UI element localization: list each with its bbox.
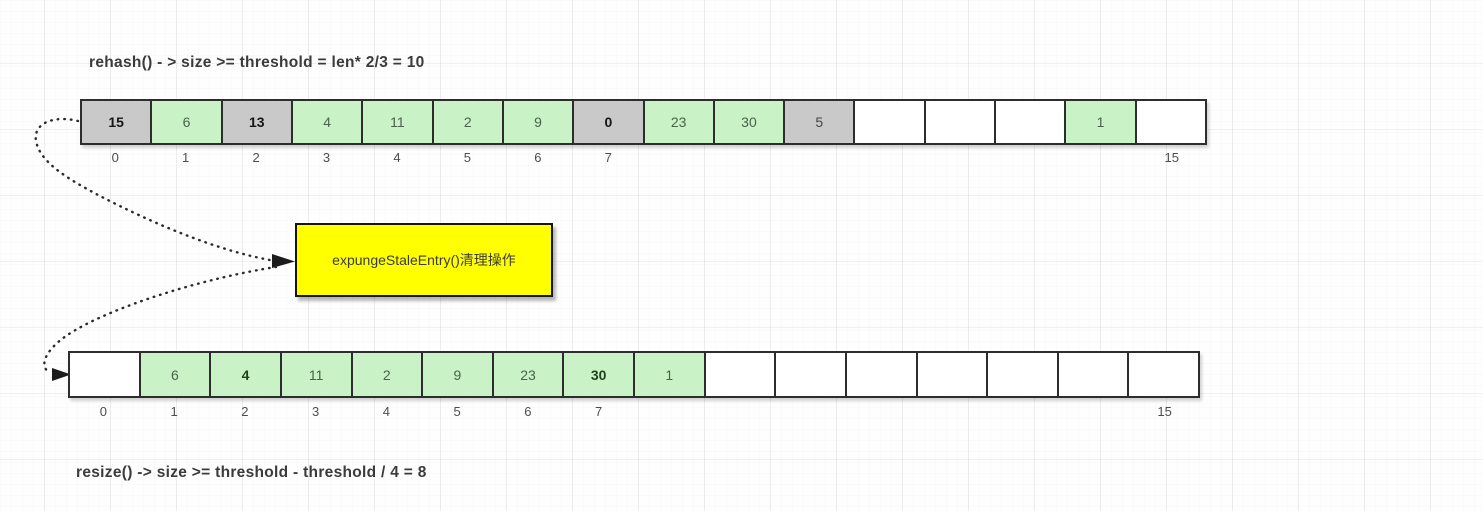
index-label: 4 xyxy=(362,150,432,166)
index-label xyxy=(1059,404,1130,420)
array-cell-empty xyxy=(706,353,777,396)
array-cell-entry: 2 xyxy=(434,101,504,143)
index-label xyxy=(988,404,1059,420)
index-label: 5 xyxy=(432,150,502,166)
index-label: 1 xyxy=(139,404,210,420)
hash-table-before-rehash: 15613411290233051 xyxy=(80,99,1207,145)
index-label xyxy=(705,404,776,420)
array-cell-empty xyxy=(996,101,1066,143)
array-cell-empty xyxy=(1059,353,1130,396)
array-cell-empty xyxy=(926,101,996,143)
arrowhead-into-callout-icon xyxy=(272,254,295,268)
index-label: 15 xyxy=(1129,404,1200,420)
index-label: 2 xyxy=(210,404,281,420)
expunge-callout-box: expungeStaleEntry()清理操作 xyxy=(295,223,553,297)
index-label xyxy=(784,150,854,166)
index-label: 6 xyxy=(493,404,564,420)
index-label xyxy=(996,150,1066,166)
index-label: 2 xyxy=(221,150,291,166)
array-cell-empty xyxy=(847,353,918,396)
array-cell-empty xyxy=(776,353,847,396)
array-cell-entry: 2 xyxy=(353,353,424,396)
array-cell-entry: 30 xyxy=(564,353,635,396)
array-cell-entry: 6 xyxy=(152,101,222,143)
index-label xyxy=(925,150,995,166)
index-label: 6 xyxy=(503,150,573,166)
array-cell-entry: 4 xyxy=(211,353,282,396)
index-label: 7 xyxy=(563,404,634,420)
array-cell-empty xyxy=(70,353,141,396)
array-cell-empty xyxy=(855,101,925,143)
array-cell-empty xyxy=(1129,353,1198,396)
array-cell-empty xyxy=(918,353,989,396)
index-label xyxy=(644,150,714,166)
index-label: 15 xyxy=(1137,150,1207,166)
array-cell-stale: 15 xyxy=(82,101,152,143)
array-cell-entry: 1 xyxy=(635,353,706,396)
index-label xyxy=(846,404,917,420)
index-label xyxy=(855,150,925,166)
array-cell-entry: 4 xyxy=(293,101,363,143)
index-label: 0 xyxy=(68,404,139,420)
index-label: 3 xyxy=(291,150,361,166)
index-label: 4 xyxy=(351,404,422,420)
dotted-arrows xyxy=(0,0,1483,511)
resize-formula-text: resize() -> size >= threshold - threshol… xyxy=(76,464,427,482)
array-cell-entry: 9 xyxy=(504,101,574,143)
diagram-canvas: rehash() - > size >= threshold = len* 2/… xyxy=(0,0,1483,511)
array-cell-entry: 6 xyxy=(141,353,212,396)
array-cell-stale: 5 xyxy=(785,101,855,143)
array-cell-entry: 23 xyxy=(645,101,715,143)
array-cell-empty xyxy=(988,353,1059,396)
array-cell-entry: 1 xyxy=(1066,101,1136,143)
array-cell-entry: 11 xyxy=(282,353,353,396)
index-label xyxy=(776,404,847,420)
hash-table-after-rehash: 64112923301 xyxy=(68,351,1200,398)
rehash-formula-text: rehash() - > size >= threshold = len* 2/… xyxy=(89,54,425,72)
array-cell-entry: 30 xyxy=(715,101,785,143)
array-cell-stale: 13 xyxy=(223,101,293,143)
index-label: 7 xyxy=(573,150,643,166)
array-cell-entry: 11 xyxy=(363,101,433,143)
index-label xyxy=(714,150,784,166)
array-cell-entry: 23 xyxy=(494,353,565,396)
index-label: 3 xyxy=(280,404,351,420)
index-labels-before: 0123456715 xyxy=(80,150,1207,166)
array-cell-stale: 0 xyxy=(574,101,644,143)
index-label: 0 xyxy=(80,150,150,166)
index-label xyxy=(917,404,988,420)
index-label xyxy=(634,404,705,420)
index-label xyxy=(1066,150,1136,166)
array-cell-entry: 9 xyxy=(423,353,494,396)
expunge-callout-label: expungeStaleEntry()清理操作 xyxy=(332,250,516,270)
array-cell-empty xyxy=(1137,101,1205,143)
index-label: 1 xyxy=(150,150,220,166)
index-label: 5 xyxy=(422,404,493,420)
index-labels-after: 0123456715 xyxy=(68,404,1200,420)
